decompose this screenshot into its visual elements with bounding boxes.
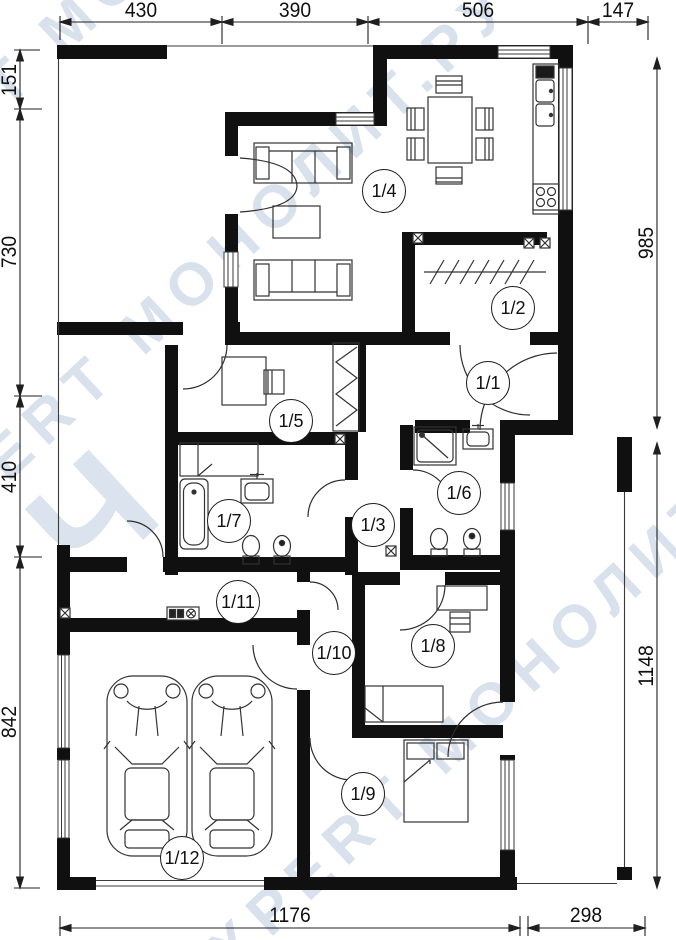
- sofa: [254, 260, 352, 300]
- desk: [222, 357, 266, 405]
- bed-single: [180, 443, 258, 476]
- room-label-1-10: 1/10: [312, 631, 356, 675]
- window: [336, 113, 374, 125]
- dim-left-730: 730: [0, 236, 22, 268]
- plan-drawing: [0, 0, 676, 940]
- window: [58, 655, 69, 748]
- room-label-1-1: 1/1: [466, 361, 510, 405]
- room-label-1-3: 1/3: [351, 503, 395, 547]
- door-arc: [127, 521, 163, 557]
- door-arc: [253, 645, 297, 689]
- dim-top-430: 430: [125, 0, 157, 23]
- bed-single: [365, 686, 443, 722]
- dim-top-390: 390: [279, 0, 311, 23]
- kitchen-counter: [533, 64, 559, 214]
- window: [559, 68, 572, 210]
- walls: [57, 45, 632, 890]
- stove: [533, 184, 559, 210]
- window: [501, 760, 514, 850]
- room-label-1-9: 1/9: [341, 772, 385, 816]
- room-label-1-7: 1/7: [207, 499, 251, 543]
- wardrobe-rail: [424, 260, 546, 284]
- dim-top-147: 147: [602, 0, 634, 23]
- window: [58, 760, 69, 838]
- bathtub: [180, 479, 208, 549]
- bidet: [464, 529, 481, 557]
- dim-left-151: 151: [0, 64, 22, 96]
- dim-bottom-298: 298: [570, 904, 602, 928]
- toilet: [431, 529, 448, 557]
- chair: [264, 370, 284, 394]
- room-label-1-5: 1/5: [269, 399, 313, 443]
- car-icon: [104, 676, 190, 856]
- chair: [450, 612, 470, 632]
- sofa: [254, 143, 352, 183]
- floor-plan: EXPERT МОНОЛИТ.РУ EXPERT МОНОЛИТ.РУ EXPE…: [0, 0, 676, 940]
- dim-right-1148: 1148: [635, 645, 659, 687]
- boiler: [167, 607, 199, 620]
- room-label-1-4: 1/4: [362, 169, 406, 213]
- door-arc: [240, 186, 297, 212]
- door-arcs: [127, 158, 557, 780]
- dim-bottom-1176: 1176: [269, 904, 311, 928]
- dim-right-985: 985: [635, 227, 659, 259]
- coffee-table: [273, 206, 320, 238]
- door-arc: [308, 480, 345, 517]
- door-arc: [310, 582, 338, 610]
- room-label-1-12: 1/12: [160, 836, 204, 880]
- window: [501, 483, 514, 530]
- car-icon: [189, 676, 275, 856]
- room-label-1-8: 1/8: [411, 624, 455, 668]
- room-label-1-6: 1/6: [437, 471, 481, 515]
- room-label-1-2: 1/2: [491, 286, 535, 330]
- wardrobe: [333, 343, 359, 431]
- door-arc: [183, 345, 227, 389]
- dim-left-842: 842: [0, 706, 22, 738]
- dim-left-410: 410: [0, 461, 22, 493]
- window: [224, 252, 238, 287]
- door-arc: [400, 585, 445, 630]
- bathroom-sink: [241, 473, 273, 503]
- door-arc: [310, 738, 352, 780]
- bed-double: [404, 740, 468, 822]
- dining-table: [407, 76, 493, 184]
- terrace-edges: [59, 46, 625, 886]
- window: [498, 46, 550, 58]
- dim-top-506: 506: [462, 0, 494, 23]
- kitchen-sink: [536, 80, 554, 126]
- room-label-1-11: 1/11: [216, 580, 260, 624]
